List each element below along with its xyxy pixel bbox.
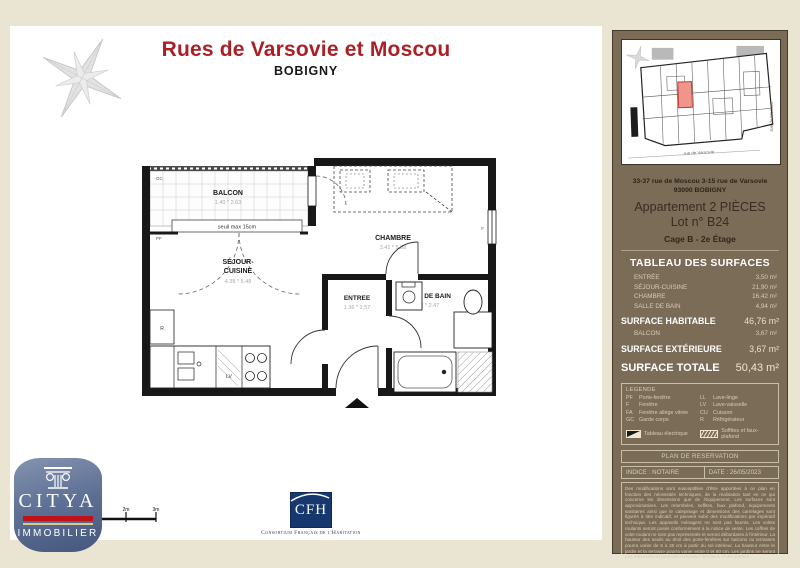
bedroom-balcony-door	[308, 176, 316, 206]
living-door-swing	[291, 330, 325, 364]
soffit-hatch-icon	[700, 430, 718, 438]
citya-subtitle: IMMOBILIER	[18, 528, 99, 539]
kitchen-counter	[150, 346, 270, 388]
page-subtitle: BOBIGNY	[10, 64, 602, 78]
cfh-caption: Consortium Français de l'Habitation	[230, 530, 392, 536]
legend-item: RRéfrigérateur	[700, 417, 774, 425]
legend-item: LVLave-vaisselle	[700, 402, 774, 410]
soffit-hatch	[458, 352, 492, 392]
project-address-line2: 93000 BOBIGNY	[621, 186, 779, 195]
scale-bar: 2m 3m	[94, 506, 164, 526]
indice-cell: INDICE : NOTAIRE	[621, 466, 705, 479]
legend-item: PFPorte-fenêtre	[626, 395, 700, 403]
info-sidebar: rue de Moscou rue de Varsovie 33-37 rue …	[612, 30, 788, 554]
surface-row: SALLE DE BAIN 4,94 m²	[621, 302, 779, 312]
svg-text:F: F	[481, 226, 484, 231]
surface-totale: SURFACE TOTALE 50,43 m²	[621, 361, 779, 375]
reservation-cells: INDICE : NOTAIRE DATE : 26/05/2023	[621, 466, 779, 479]
surface-habitable: SURFACE HABITABLE 46,76 m²	[621, 315, 779, 327]
legend-item: GCGarde corps	[626, 417, 700, 425]
legal-disclaimer: Des modifications sont susceptibles d'êt…	[621, 482, 779, 564]
legend-item: FFenêtre	[626, 402, 700, 410]
highlighted-unit	[678, 82, 693, 108]
column-capital-icon	[41, 465, 75, 489]
apartment-type: Appartement 2 PIÈCES	[621, 200, 779, 215]
citya-name: CITYA	[19, 490, 98, 513]
svg-text:2m: 2m	[123, 507, 130, 513]
legend-item: LLLave-linge	[700, 395, 774, 403]
legend-electric: Tableau électrique	[626, 430, 700, 438]
citya-red-bar	[23, 516, 93, 521]
cfh-swoosh-icon	[289, 489, 331, 503]
street-moscou: rue de Moscou	[769, 102, 774, 132]
divider	[621, 250, 779, 251]
washbasin	[464, 290, 482, 314]
seuil-note: seuil max 15cm	[218, 225, 257, 231]
balcony-label: BALCON	[213, 190, 243, 197]
floor-plan: GC BALCON 1.40 * 2.63 seuil max 15cm F P…	[138, 150, 520, 408]
svg-text:3m: 3m	[153, 507, 160, 513]
bathtub	[394, 352, 456, 392]
citya-logo: CITYA IMMOBILIER	[14, 458, 102, 552]
svg-text:CUISINE: CUISINE	[224, 268, 253, 275]
date-cell: DATE : 26/05/2023	[705, 466, 779, 479]
bedroom-balcony-swing	[316, 176, 346, 206]
project-address-line1: 33-37 rue de Moscou 3-15 rue de Varsovie	[621, 177, 779, 186]
balcony: GC BALCON 1.40 * 2.63 seuil max 15cm	[142, 166, 316, 232]
bedroom: CHAMBRE 3.41 * 5.88	[334, 166, 452, 274]
electric-panel-icon	[626, 430, 641, 438]
surface-row: ENTRÉE 3,50 m²	[621, 273, 779, 283]
cfh-name: CFH	[295, 502, 327, 519]
gc-label: GC	[156, 176, 164, 181]
r-label: R	[160, 326, 164, 332]
svg-text:ENTREE: ENTREE	[344, 295, 371, 302]
bedroom-label: CHAMBRE	[375, 235, 411, 242]
svg-text:1.36 * 2.57: 1.36 * 2.57	[344, 305, 371, 311]
lot-number: Lot n° B24	[621, 215, 779, 230]
citya-gold-line	[23, 523, 93, 525]
entry-door-swing	[336, 346, 378, 388]
bathroom: SALLE DE BAIN 2.22 * 2.47	[389, 282, 492, 392]
window-f: F	[481, 210, 496, 244]
svg-text:SÉJOUR-: SÉJOUR-	[222, 257, 254, 266]
legend-title: LEGENDE	[626, 387, 774, 393]
washing-machine	[396, 282, 422, 310]
living-kitchen: SÉJOUR- CUISINE 4.38 * 5.48 LV R	[150, 257, 325, 388]
legend-item: FAFenêtre allège vitrée	[626, 410, 700, 418]
surface-row: CHAMBRE 16,42 m²	[621, 292, 779, 302]
lv-label: LV	[226, 374, 232, 380]
surface-row: SÉJOUR-CUISINE 21,90 m²	[621, 283, 779, 293]
page-title: Rues de Varsovie et Moscou	[10, 38, 602, 62]
legend-item: CUCuisson	[700, 410, 774, 418]
svg-text:4.38 * 5.48: 4.38 * 5.48	[225, 279, 252, 285]
site-plan-thumbnail: rue de Moscou rue de Varsovie	[621, 39, 781, 165]
vanity	[454, 312, 492, 348]
reservation-title: PLAN DE RESERVATION	[621, 450, 779, 463]
surface-exterieure: SURFACE EXTÉRIEURE 3,67 m²	[621, 343, 779, 355]
balcony-dims: 1.40 * 2.63	[215, 200, 242, 206]
surface-row-balcon: BALCON 3,67 m²	[621, 329, 779, 339]
legend: LEGENDE PFPorte-fenêtre FFenêtre FAFenêt…	[621, 383, 779, 445]
svg-text:PF: PF	[156, 236, 162, 241]
entrance-arrow	[345, 398, 369, 408]
legend-soffits: Soffites et faux-plafond	[700, 428, 774, 440]
stair-floor: Cage B - 2e Étage	[621, 234, 779, 244]
bathroom-door-swing	[389, 316, 421, 348]
entrance-opening	[336, 388, 378, 396]
surfaces-heading: TABLEAU DES SURFACES	[621, 257, 779, 269]
